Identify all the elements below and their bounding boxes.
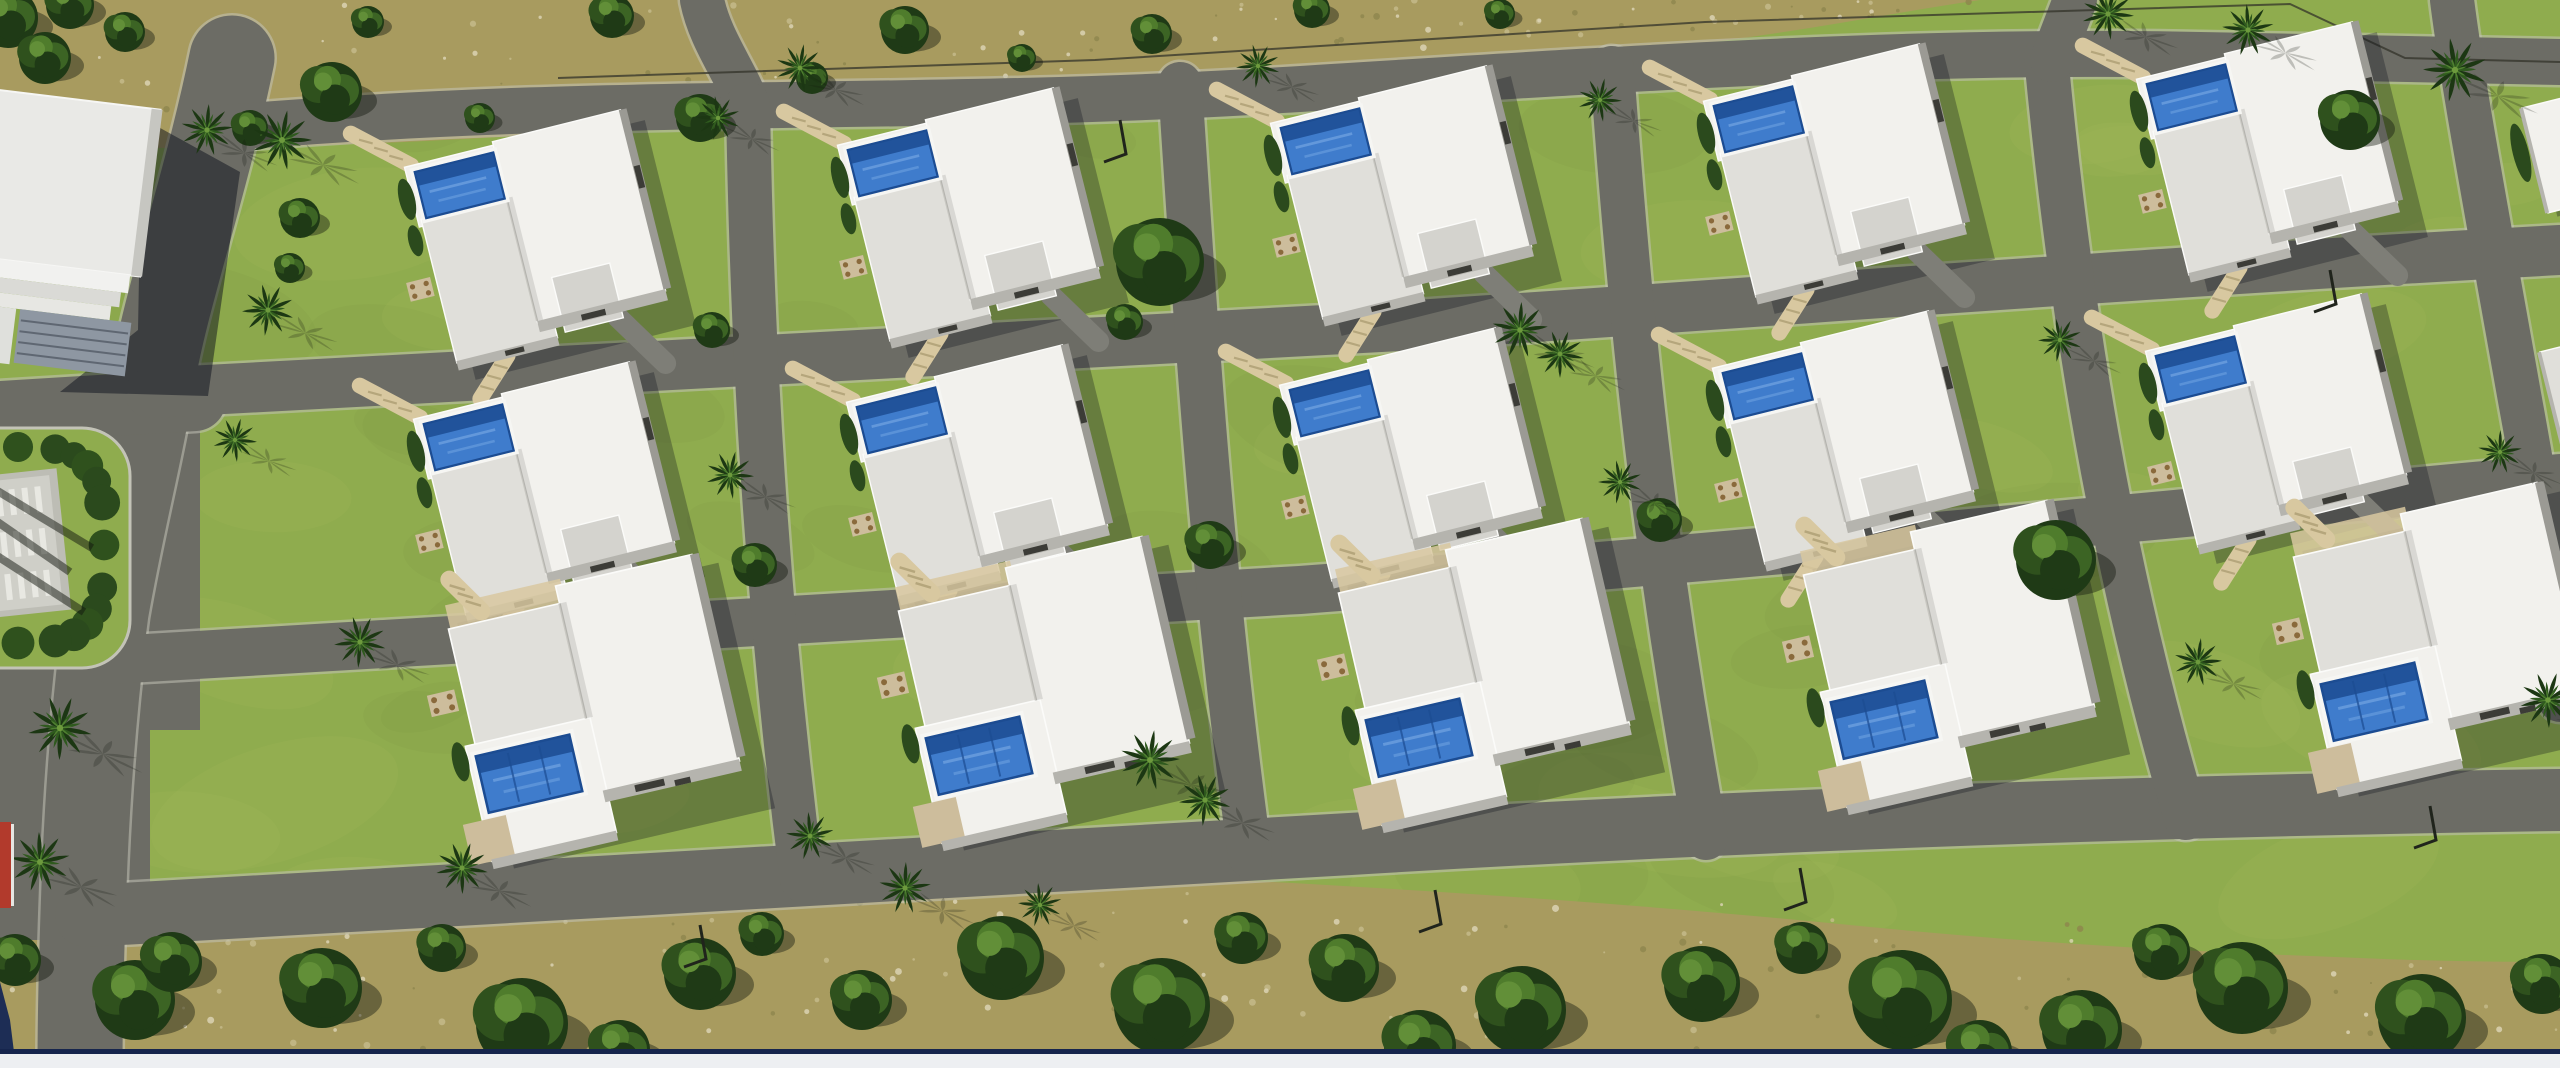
lane-4-stub [2052,0,2075,60]
tennis-court-sliver [0,822,11,908]
hedge-bush [3,432,33,462]
aerial-render-viewport [0,0,2560,1068]
site-plan-svg [0,0,2560,1068]
bottom-divider-line [0,1049,2560,1054]
bottom-ui-strip [0,1054,2560,1068]
hedge-bush [39,624,72,657]
monument-plaza [0,428,130,668]
hedge-bush [84,485,120,521]
hedge-bush [2,627,35,660]
